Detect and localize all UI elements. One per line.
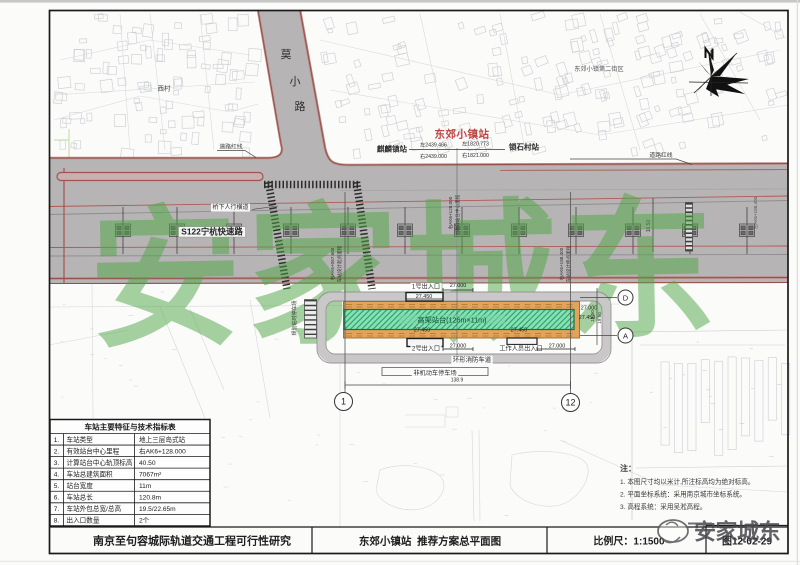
- svg-text:右1821.000: 右1821.000: [462, 151, 489, 159]
- svg-text:东郊小镇第二街区: 东郊小镇第二街区: [574, 65, 624, 73]
- svg-text:东郊小镇站 推荐方案总平面图: 东郊小镇站 推荐方案总平面图: [359, 535, 501, 548]
- svg-text:左2439.466: 左2439.466: [420, 141, 447, 149]
- svg-text:西村: 西村: [158, 84, 172, 93]
- svg-text:车站总建筑面积: 车站总建筑面积: [67, 469, 114, 478]
- svg-text:右AK6+067.600: 右AK6+067.600: [329, 247, 336, 280]
- svg-text:规划临时停车场: 规划临时停车场: [291, 300, 298, 335]
- svg-text:8.: 8.: [54, 518, 60, 525]
- svg-text:120.8m: 120.8m: [139, 495, 162, 502]
- svg-text:安家城东: 安家城东: [694, 520, 781, 545]
- svg-text:27.450: 27.450: [414, 328, 431, 334]
- svg-text:车站总长: 车站总长: [67, 493, 94, 502]
- svg-text:非机动车停车场: 非机动车停车场: [413, 369, 456, 377]
- svg-text:计算站台中心轨顶标高: 计算站台中心轨顶标高: [67, 458, 133, 467]
- svg-text:40.50: 40.50: [139, 460, 156, 467]
- svg-text:车站类型: 车站类型: [67, 435, 94, 444]
- svg-text:南京至句容城际轨道交通工程可行性研究: 南京至句容城际轨道交通工程可行性研究: [93, 534, 291, 548]
- svg-text:右2439.000: 右2439.000: [420, 152, 447, 160]
- svg-text:右AK6+128.000: 右AK6+128.000: [447, 196, 454, 229]
- svg-text:小: 小: [290, 75, 301, 88]
- svg-text:18.50: 18.50: [590, 310, 595, 322]
- svg-text:左1820.773: 左1820.773: [462, 140, 489, 148]
- svg-text:高架站台(126m×11m): 高架站台(126m×11m): [417, 316, 486, 325]
- svg-text:站台宽度: 站台宽度: [67, 481, 94, 490]
- svg-text:27.000: 27.000: [450, 344, 467, 350]
- svg-text:地上三层岛式站: 地上三层岛式站: [139, 435, 186, 444]
- svg-text:2个: 2个: [139, 517, 150, 525]
- svg-text:道路红线: 道路红线: [219, 143, 242, 151]
- svg-text:莫: 莫: [281, 48, 292, 61]
- svg-text:3.: 3.: [54, 460, 60, 467]
- svg-text:出入口数量: 出入口数量: [67, 516, 100, 525]
- svg-text:1. 本图尺寸均以米计,所注标高均为绝对标高。: 1. 本图尺寸均以米计,所注标高均为绝对标高。: [620, 477, 754, 486]
- svg-text:车站主要特征与技术指标表: 车站主要特征与技术指标表: [84, 422, 176, 432]
- svg-text:2.: 2.: [54, 448, 60, 455]
- svg-text:工作人员出入口: 工作人员出入口: [499, 345, 542, 353]
- svg-text:S122宁杭快速路: S122宁杭快速路: [181, 227, 243, 237]
- svg-text:27.000: 27.000: [450, 283, 467, 289]
- svg-text:1号出入口: 1号出入口: [412, 283, 440, 291]
- svg-text:3. 高程系统：采用吴淞高程。: 3. 高程系统：采用吴淞高程。: [620, 502, 706, 511]
- svg-text:11m: 11m: [139, 483, 152, 490]
- svg-text:7.: 7.: [54, 506, 60, 513]
- svg-text:比例尺：1:1500: 比例尺：1:1500: [593, 535, 665, 548]
- svg-text:麒麟镇站: 麒麟镇站: [377, 144, 407, 154]
- svg-text:车站设计终点里程: 车站设计终点里程: [565, 245, 572, 282]
- svg-text:有效站台中心里程: 有效站台中心里程: [67, 446, 120, 455]
- svg-text:右AK6+128.000: 右AK6+128.000: [139, 446, 186, 455]
- svg-text:19.5/22.65m: 19.5/22.65m: [139, 506, 176, 513]
- svg-text:1.: 1.: [54, 437, 60, 444]
- svg-text:A: A: [623, 332, 628, 341]
- svg-text:7067m²: 7067m²: [139, 471, 162, 478]
- svg-text:注：: 注：: [620, 463, 636, 473]
- svg-text:4.: 4.: [54, 471, 60, 478]
- svg-text:12: 12: [565, 398, 575, 408]
- svg-text:车站设计起点里程: 车站设计起点里程: [336, 245, 343, 282]
- svg-text:2号出入口: 2号出入口: [412, 345, 440, 353]
- svg-text:东郊小镇站: 东郊小镇站: [435, 128, 490, 141]
- svg-text:环形消防车道: 环形消防车道: [453, 355, 492, 364]
- svg-text:5.: 5.: [54, 483, 60, 490]
- svg-text:桥下人行横道: 桥下人行横道: [212, 203, 248, 211]
- svg-text:27.000: 27.000: [549, 344, 566, 350]
- svg-text:左AK6+188.400: 左AK6+188.400: [752, 196, 758, 229]
- svg-text:D: D: [623, 294, 629, 303]
- svg-text:右AK6+188.400: 右AK6+188.400: [558, 247, 565, 280]
- svg-text:锁石村站: 锁石村站: [509, 142, 539, 152]
- svg-text:道路红线: 道路红线: [649, 151, 672, 159]
- svg-text:2. 平面坐标系统：采用南京城市坐标系统。: 2. 平面坐标系统：采用南京城市坐标系统。: [620, 490, 746, 499]
- svg-text:车站外包总宽/总高: 车站外包总宽/总高: [67, 504, 122, 513]
- svg-text:138.9: 138.9: [451, 378, 464, 384]
- svg-text:路: 路: [295, 100, 306, 113]
- svg-text:1: 1: [341, 397, 346, 407]
- svg-text:6.: 6.: [54, 495, 60, 502]
- svg-text:19.50: 19.50: [597, 312, 602, 324]
- svg-text:有效站台中心里程: 有效站台中心里程: [454, 194, 461, 231]
- svg-text:27.450: 27.450: [511, 328, 528, 334]
